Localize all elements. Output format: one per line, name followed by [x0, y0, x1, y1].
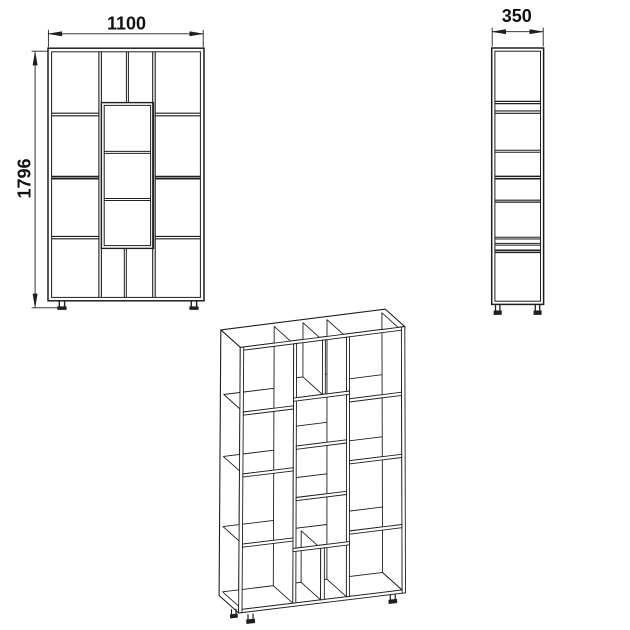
svg-text:1100: 1100 [107, 14, 146, 34]
svg-text:1796: 1796 [15, 158, 35, 198]
svg-text:350: 350 [502, 6, 532, 26]
